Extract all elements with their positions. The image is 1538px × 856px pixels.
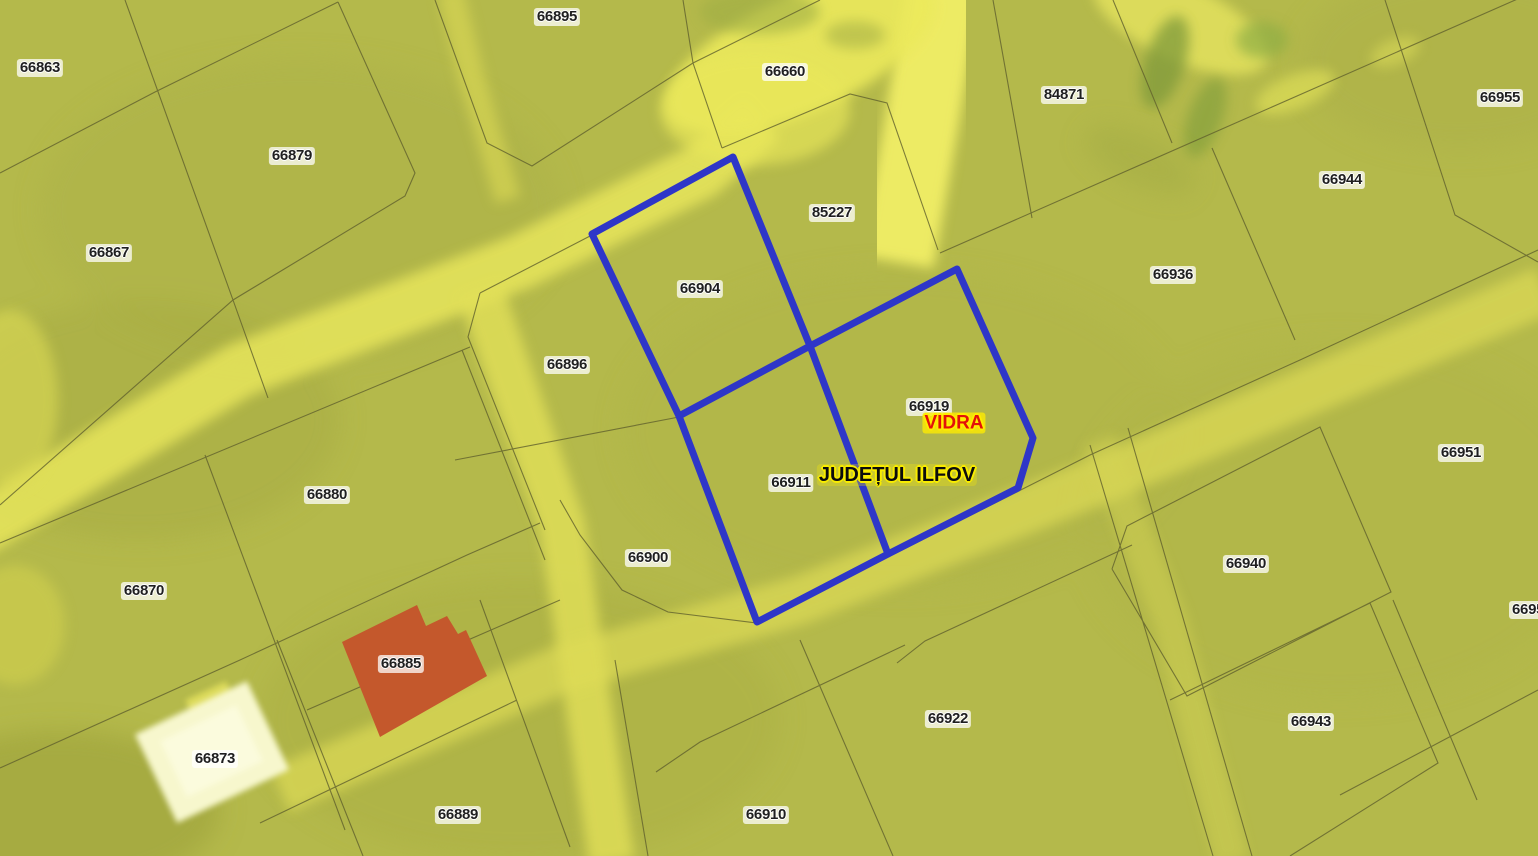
parcel-label-66944[interactable]: 66944 [1319,171,1365,189]
county-label-ilfov: JUDEȚUL ILFOV [817,464,977,486]
parcel-label-66880[interactable]: 66880 [304,486,350,504]
parcel-label-66955[interactable]: 66955 [1477,89,1523,107]
parcel-label-66896[interactable]: 66896 [544,356,590,374]
parcel-label-66873[interactable]: 66873 [192,750,238,768]
parcel-label-66867[interactable]: 66867 [86,244,132,262]
locality-label-vidra: VIDRA [922,413,985,434]
parcel-label-66904[interactable]: 66904 [677,280,723,298]
map-canvas[interactable]: 6686366879668676689566660848716695566944… [0,0,1538,856]
parcel-label-66900[interactable]: 66900 [625,549,671,567]
parcel-label-66895[interactable]: 66895 [534,8,580,26]
parcel-label-66910[interactable]: 66910 [743,806,789,824]
parcel-label-66870[interactable]: 66870 [121,582,167,600]
parcel-label-66889[interactable]: 66889 [435,806,481,824]
parcel-label-66911[interactable]: 66911 [768,474,813,492]
parcel-label-66885[interactable]: 66885 [378,655,424,673]
parcel-label-66940[interactable]: 66940 [1223,555,1269,573]
parcel-label-66936[interactable]: 66936 [1150,266,1196,284]
parcel-label-84871[interactable]: 84871 [1041,86,1087,104]
parcel-label-85227[interactable]: 85227 [809,204,855,222]
parcel-label-66951[interactable]: 66951 [1438,444,1484,462]
parcel-label-66879[interactable]: 66879 [269,147,315,165]
parcel-label-66943[interactable]: 66943 [1288,713,1334,731]
parcel-label-66922[interactable]: 66922 [925,710,971,728]
parcel-label-66863[interactable]: 66863 [17,59,63,77]
parcel-label-edge-6695[interactable]: 6695 [1509,601,1538,619]
parcel-label-66660[interactable]: 66660 [762,63,808,81]
